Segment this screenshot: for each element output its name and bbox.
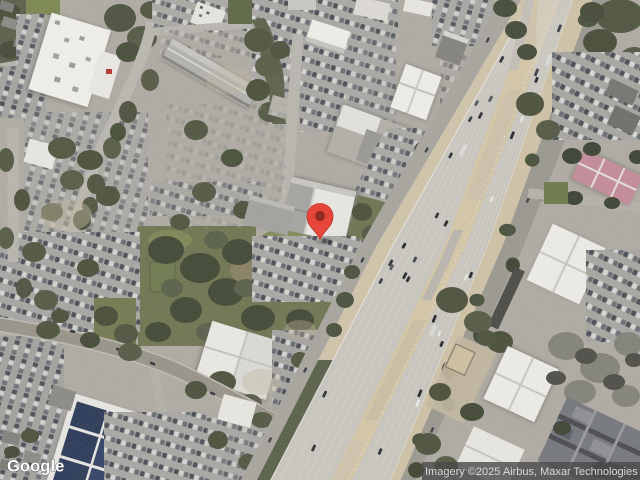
svg-text:Imagery ©2025 Airbus, Maxar Te: Imagery ©2025 Airbus, Maxar Technologies: [425, 466, 638, 478]
svg-text:Google: Google: [7, 458, 64, 476]
